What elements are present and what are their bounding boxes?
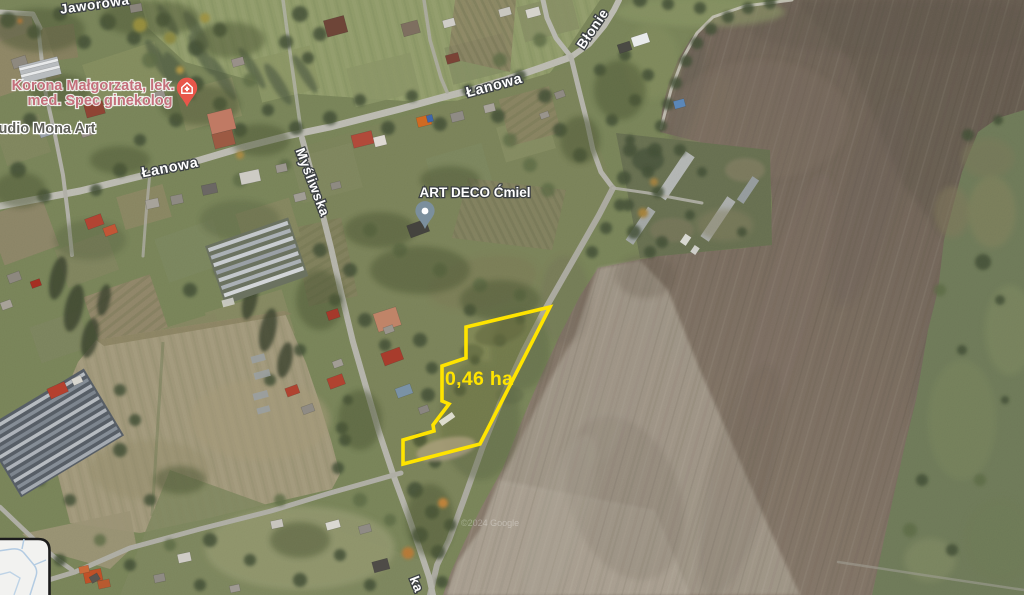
- svg-text:udio Mona Art: udio Mona Art: [0, 121, 96, 137]
- svg-text:Korona Małgorzata, lek.: Korona Małgorzata, lek.: [12, 78, 175, 94]
- svg-text:ART DECO Ćmiel: ART DECO Ćmiel: [419, 185, 530, 200]
- svg-text:©2024 Google: ©2024 Google: [461, 518, 519, 528]
- svg-text:med. Spec ginekolog: med. Spec ginekolog: [27, 93, 172, 109]
- svg-text:0,46 ha: 0,46 ha: [445, 368, 513, 390]
